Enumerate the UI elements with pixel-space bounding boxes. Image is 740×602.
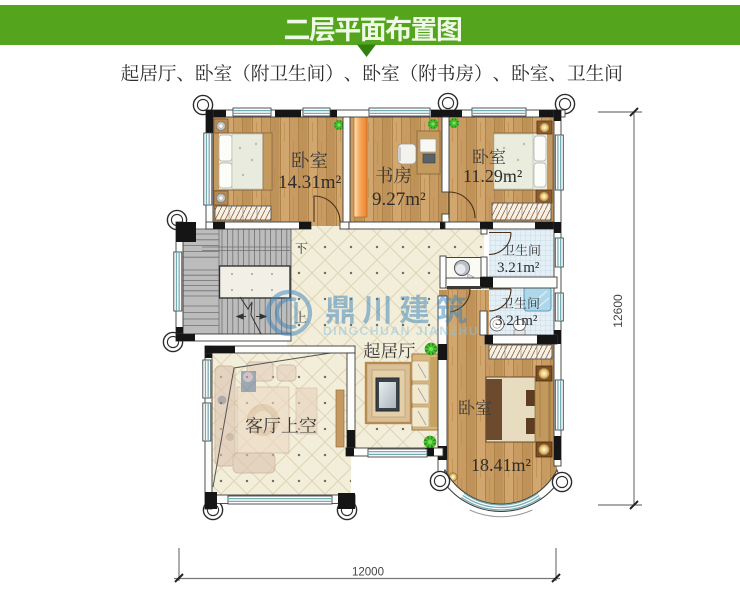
svg-text:14.31m²: 14.31m² bbox=[278, 172, 342, 193]
svg-text:9.27m²: 9.27m² bbox=[372, 189, 426, 210]
svg-text:DINGCHUAN JIANZHU: DINGCHUAN JIANZHU bbox=[323, 324, 479, 338]
svg-text:12000: 12000 bbox=[352, 567, 384, 579]
svg-text:12600: 12600 bbox=[611, 294, 625, 328]
svg-text:11.29m²: 11.29m² bbox=[463, 166, 522, 186]
svg-text:3.21m²: 3.21m² bbox=[497, 260, 540, 276]
svg-text:18.41m²: 18.41m² bbox=[471, 455, 531, 475]
svg-text:3.21m²: 3.21m² bbox=[495, 313, 538, 329]
